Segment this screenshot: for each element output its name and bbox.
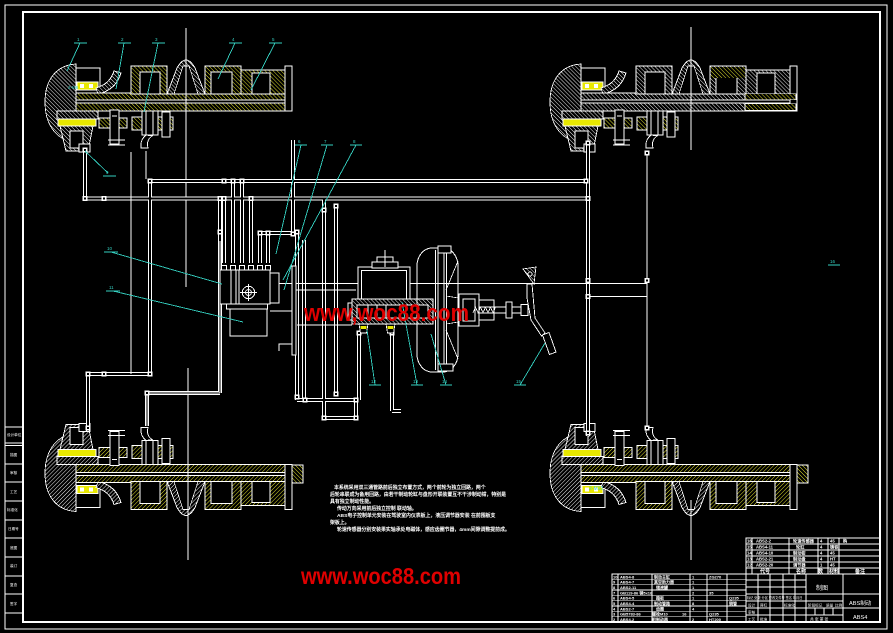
svg-text:制图: 制图 xyxy=(816,584,828,592)
svg-text:轮缸: 轮缸 xyxy=(796,544,805,551)
svg-text:ABS4-2: ABS4-2 xyxy=(620,617,635,622)
svg-text:设计单位: 设计单位 xyxy=(7,432,22,437)
svg-text:HT200: HT200 xyxy=(709,617,722,622)
svg-text:GB119-86 销5x18: GB119-86 销5x18 xyxy=(620,589,653,595)
svg-text:Q235: Q235 xyxy=(729,596,740,601)
svg-text:蒋红: 蒋红 xyxy=(760,603,768,608)
svg-text:16: 16 xyxy=(830,259,836,264)
svg-text:Q235: Q235 xyxy=(709,612,720,617)
svg-text:传动万向采用前后独立控制 联动轴。: 传动万向采用前后独立控制 联动轴。 xyxy=(336,505,417,512)
svg-text:签字: 签字 xyxy=(10,601,18,606)
svg-text:ABS4-4: ABS4-4 xyxy=(620,601,635,606)
svg-text:真空助力器: 真空助力器 xyxy=(653,579,675,585)
svg-text:12: 12 xyxy=(747,563,752,568)
svg-text:轮速传感器分别安装果实轴承处电磁体，感应齿圈节器，4mm间隙: 轮速传感器分别安装果实轴承处电磁体，感应齿圈节器，4mm间隙调整提前成。 xyxy=(337,526,510,533)
svg-text:ABS4: ABS4 xyxy=(853,615,867,621)
svg-text:15: 15 xyxy=(747,545,752,550)
svg-text:13: 13 xyxy=(747,557,752,562)
svg-text:踏板: 踏板 xyxy=(656,595,665,601)
svg-text:15: 15 xyxy=(516,379,522,384)
svg-text:制动钳: 制动钳 xyxy=(793,550,806,557)
svg-text:HT: HT xyxy=(830,557,836,562)
svg-text:45: 45 xyxy=(830,563,835,568)
svg-text:标准化: 标准化 xyxy=(7,507,18,512)
svg-text:储液罐: 储液罐 xyxy=(656,584,668,590)
svg-text:14: 14 xyxy=(442,379,448,384)
svg-text:ABS4-11: ABS4-11 xyxy=(756,545,774,550)
svg-text:螺栓M10: 螺栓M10 xyxy=(652,611,669,617)
svg-text:ABS电子控制单元安装在驾驶室内仪表板上，液压调节器安装 在: ABS电子控制单元安装在驾驶室内仪表板上，液压调节器安装 在前围板支 xyxy=(337,512,496,519)
svg-text:ABS4-7: ABS4-7 xyxy=(620,580,635,585)
svg-text:轮速传感器: 轮速传感器 xyxy=(793,538,815,545)
svg-text:购: 购 xyxy=(843,538,847,545)
svg-text:质量: 质量 xyxy=(826,603,834,608)
svg-text:阶段标记: 阶段标记 xyxy=(808,603,823,608)
svg-text:制动管路: 制动管路 xyxy=(654,600,670,606)
svg-text:35: 35 xyxy=(709,590,714,595)
svg-text:比例: 比例 xyxy=(835,603,843,608)
svg-text:16: 16 xyxy=(747,539,752,544)
svg-text:12: 12 xyxy=(371,379,377,384)
svg-text:45: 45 xyxy=(830,539,835,544)
svg-text:10: 10 xyxy=(613,574,618,579)
svg-text:后轮串联成为备用回路，由若干制动轮缸与盘形开联装置互不干涉制: 后轮串联成为备用回路，由若干制动轮缸与盘形开联装置互不干涉制动钳，特别是 xyxy=(330,491,506,498)
svg-text:ABS2-2: ABS2-2 xyxy=(756,539,772,544)
svg-text:底图: 底图 xyxy=(10,545,18,550)
svg-text:标准化: 标准化 xyxy=(784,603,795,608)
svg-text:14: 14 xyxy=(747,551,752,556)
svg-text:铜管: 铜管 xyxy=(729,600,737,606)
svg-text:ABS4-10: ABS4-10 xyxy=(756,551,774,556)
svg-text:装订: 装订 xyxy=(10,563,18,568)
svg-text:调节器: 调节器 xyxy=(793,562,806,569)
svg-text:16: 16 xyxy=(682,612,687,617)
svg-text:制动盘: 制动盘 xyxy=(793,556,806,563)
svg-text:11: 11 xyxy=(109,285,114,290)
svg-text:www.woc88.com: www.woc88.com xyxy=(300,563,461,589)
svg-text:铸铁: 铸铁 xyxy=(830,544,839,551)
svg-text:设计: 设计 xyxy=(748,603,756,608)
svg-text:具有独立制动性能。: 具有独立制动性能。 xyxy=(329,498,374,505)
svg-text:45: 45 xyxy=(830,551,835,556)
svg-text:工艺: 工艺 xyxy=(748,617,756,622)
svg-text:日期号: 日期号 xyxy=(8,526,19,531)
svg-text:架板上。: 架板上。 xyxy=(329,519,350,526)
svg-text:审核: 审核 xyxy=(748,610,756,615)
svg-text:批准: 批准 xyxy=(760,617,768,622)
svg-text:ABS2-7: ABS2-7 xyxy=(620,606,635,611)
svg-text:www,woc88.com: www,woc88.com xyxy=(303,300,469,327)
svg-text:ABS2-21: ABS2-21 xyxy=(756,557,774,562)
svg-text:ABS制动: ABS制动 xyxy=(849,599,872,607)
svg-text:标记 处数 分区 更改文件号 签名 年月日: 标记 处数 分区 更改文件号 签名 年月日 xyxy=(747,595,802,600)
svg-text:ABS4-5: ABS4-5 xyxy=(620,596,635,601)
svg-text:GB5783-86: GB5783-86 xyxy=(620,612,641,617)
svg-text:本系统采用双三通管路前后独立布置方式，两个前轮为独立回路，两: 本系统采用双三通管路前后独立布置方式，两个前轮为独立回路，两个 xyxy=(334,484,486,491)
svg-text:ABS2-11: ABS2-11 xyxy=(620,585,637,590)
svg-text:工艺: 工艺 xyxy=(10,489,18,494)
svg-text:10: 10 xyxy=(107,246,113,251)
svg-text:复查: 复查 xyxy=(10,582,18,587)
svg-text:齿圈: 齿圈 xyxy=(656,605,664,611)
svg-text:ZG270: ZG270 xyxy=(709,574,722,579)
svg-text:共 张 第 张: 共 张 第 张 xyxy=(810,617,829,622)
svg-text:13: 13 xyxy=(413,379,419,384)
svg-text:ABS4-8: ABS4-8 xyxy=(620,574,635,579)
svg-text:ABS2-20: ABS2-20 xyxy=(756,563,774,568)
svg-text:2-M10: 2-M10 xyxy=(589,486,603,492)
svg-text:制动主缸: 制动主缸 xyxy=(654,573,670,579)
svg-text:前制动器: 前制动器 xyxy=(652,616,669,622)
svg-text:描图: 描图 xyxy=(10,452,18,457)
svg-text:2-M6: 2-M6 xyxy=(68,85,79,90)
svg-text:审核: 审核 xyxy=(10,470,18,475)
